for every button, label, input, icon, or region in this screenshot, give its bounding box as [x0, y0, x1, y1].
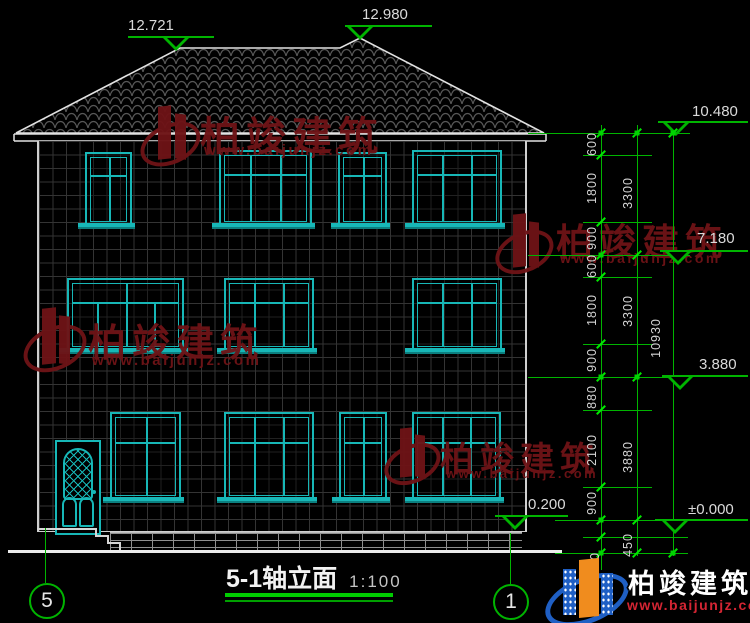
extension-line	[583, 222, 652, 223]
watermark-building-icon	[388, 428, 432, 480]
logo-brand-text: 柏竣建筑	[628, 562, 750, 601]
porch-platform-line	[37, 528, 97, 530]
dim-label: 600	[585, 254, 599, 278]
entry-door	[55, 440, 101, 535]
extension-line	[583, 410, 652, 411]
axis-number: 1	[505, 590, 517, 614]
cad-elevation-drawing: 600 1800 900 600 1800 900 880 2100 900 4…	[0, 0, 750, 623]
drawing-title: 5-1轴立面1:100	[226, 559, 402, 595]
window-sill	[405, 223, 505, 229]
dim-label: 450	[621, 533, 635, 557]
title-underline	[225, 593, 393, 597]
dim-label: 3300	[621, 295, 635, 327]
level-marker-icon	[502, 517, 528, 530]
dim-line	[637, 125, 638, 556]
level-marker-icon	[665, 252, 691, 265]
window-1f-2	[224, 412, 314, 501]
level-value: 0.200	[528, 496, 566, 513]
level-marker-icon	[662, 521, 688, 534]
dim-label: 3300	[621, 177, 635, 209]
axis-bubble-1: 1	[493, 584, 529, 620]
extension-line	[583, 344, 652, 345]
level-value: 3.880	[699, 356, 737, 373]
window-2f-3	[412, 278, 502, 352]
dim-line	[601, 125, 602, 570]
window-1f-1	[110, 412, 181, 501]
axis-bubble-5: 5	[29, 583, 65, 619]
logo-url-text: www.baijunjz.com	[627, 597, 750, 613]
ground-line	[8, 550, 562, 553]
watermark-building-icon	[28, 308, 78, 368]
title-scale: 1:100	[349, 572, 402, 591]
window-sill	[103, 497, 184, 503]
window-sill	[331, 223, 390, 229]
dim-label: 900	[585, 348, 599, 372]
window-3f-1	[85, 152, 132, 227]
dim-label: 900	[585, 491, 599, 515]
watermark-building-icon	[500, 214, 546, 270]
window-sill	[405, 497, 504, 503]
dim-label: 880	[585, 385, 599, 409]
axis-line-1	[510, 533, 511, 584]
dim-label: 1800	[585, 172, 599, 204]
window-sill	[217, 497, 317, 503]
dim-label: 2100	[585, 434, 599, 466]
window-sill	[332, 497, 390, 503]
dim-line	[673, 125, 674, 556]
window-1f-3	[339, 412, 387, 501]
logo-building-icon	[543, 557, 627, 621]
level-value: ±0.000	[688, 501, 734, 518]
window-sill	[78, 223, 135, 229]
dim-label-overall: 10930	[649, 318, 663, 358]
window-sill	[212, 223, 315, 229]
level-marker-icon	[347, 27, 373, 40]
level-value: 12.980	[362, 6, 408, 23]
watermark-building-icon	[145, 106, 193, 162]
level-value: 10.480	[692, 103, 738, 120]
title-underline-thin	[225, 600, 393, 602]
extension-line	[528, 377, 690, 378]
brand-logo: 柏竣建筑 www.baijunjz.com	[543, 557, 750, 623]
level-marker-icon	[667, 377, 693, 390]
door-lattice-panel	[63, 448, 93, 500]
title-text: 5-1轴立面	[226, 565, 337, 593]
level-marker-icon	[163, 38, 189, 51]
window-3f-4	[412, 150, 502, 227]
brick-plinth	[110, 532, 522, 552]
level-value: 12.721	[128, 17, 174, 34]
axis-number: 5	[41, 589, 53, 613]
window-sill	[405, 348, 505, 354]
dim-label: 3880	[621, 441, 635, 473]
dim-label: 1800	[585, 294, 599, 326]
dim-label: 600	[585, 132, 599, 156]
window-3f-3	[338, 152, 387, 227]
axis-line-5	[45, 528, 46, 583]
extension-line	[583, 487, 652, 488]
door-knob	[92, 490, 96, 494]
dim-label: 900	[585, 226, 599, 250]
level-value: 7.180	[697, 230, 735, 247]
